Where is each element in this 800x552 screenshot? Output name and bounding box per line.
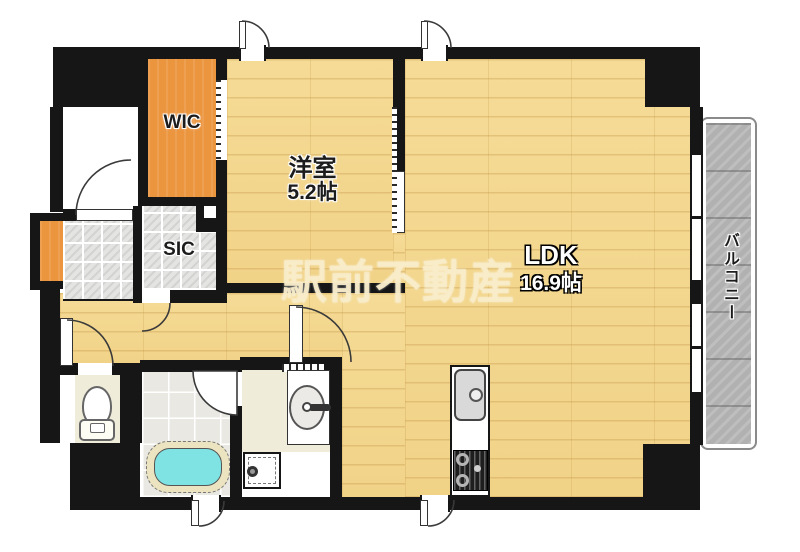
top-door-arc-west	[242, 21, 269, 48]
toilet-doorway	[76, 363, 114, 375]
wall-genkan-top	[30, 213, 63, 221]
wall-left-lower	[40, 283, 60, 443]
wall-washroom-right	[330, 357, 342, 497]
toilet-door-leaf	[60, 318, 73, 366]
floorplan: WIC SIC 洋室 5.2帖 LDK 16.9帖 バルコニー 駅前不動産	[0, 0, 800, 552]
toilet-lid-detail	[90, 423, 105, 433]
wall-right-upper	[690, 107, 703, 155]
bath-doorway	[230, 370, 242, 408]
wall-wic-left	[138, 59, 148, 205]
bottom-door-leaf-west	[191, 500, 199, 526]
wall-bottom-right-block	[643, 444, 700, 497]
wall-toilet-bath-divider	[120, 363, 142, 443]
genkan-step-line	[63, 299, 133, 301]
ldk-window-lower-mullion	[690, 346, 703, 349]
sic-label: SIC	[142, 239, 216, 261]
balcony-label: バルコニー	[717, 212, 741, 342]
western-ldk-sliding-track	[392, 107, 397, 233]
entrance-door-leaf	[76, 209, 133, 221]
sic-corner-notch	[204, 206, 216, 218]
sic-doorway	[142, 290, 170, 303]
wall-top-left-block	[53, 47, 138, 107]
bottom-door-leaf-east	[420, 500, 428, 526]
shoe-cabinet	[40, 221, 63, 281]
kitchen-sink-drain	[469, 388, 483, 402]
wall-bath-washroom-lower	[230, 408, 242, 497]
top-door-arc-east	[424, 21, 451, 48]
wic-accordion-door	[216, 80, 221, 160]
wall-right-mid	[690, 280, 703, 304]
washbasin-faucet	[310, 404, 331, 411]
stove-knob	[474, 465, 481, 472]
stove-burner-top	[456, 453, 469, 466]
wall-genkan-left	[30, 213, 40, 290]
wall-top-right-block	[645, 47, 700, 107]
wall-wic-sic-divider	[138, 197, 216, 206]
watermark-text: 駅前不動産	[281, 246, 516, 312]
stove-burner-bottom	[456, 474, 469, 487]
top-door-leaf-west	[239, 21, 246, 49]
ldk-window-upper-mullion	[690, 216, 703, 219]
washer-drain-dot	[250, 469, 255, 474]
top-door-leaf-east	[421, 21, 428, 49]
wic-label: WIC	[148, 112, 216, 134]
entry-porch-floor	[63, 107, 138, 211]
wall-bottom	[70, 497, 700, 510]
wall-bottom-left-block	[70, 443, 140, 497]
wall-genkan-sic-divider	[133, 206, 142, 303]
western-room-size: 5.2帖	[265, 176, 360, 206]
bathtub-water	[154, 448, 222, 486]
wall-top	[53, 47, 700, 59]
hall-door-leaf	[289, 305, 303, 363]
wall-right-lower	[690, 392, 703, 445]
wall-porch-left	[50, 107, 63, 212]
ldk-lower-floor	[342, 293, 405, 497]
genkan-tile-floor	[63, 221, 133, 301]
wall-bath-top	[140, 360, 240, 372]
